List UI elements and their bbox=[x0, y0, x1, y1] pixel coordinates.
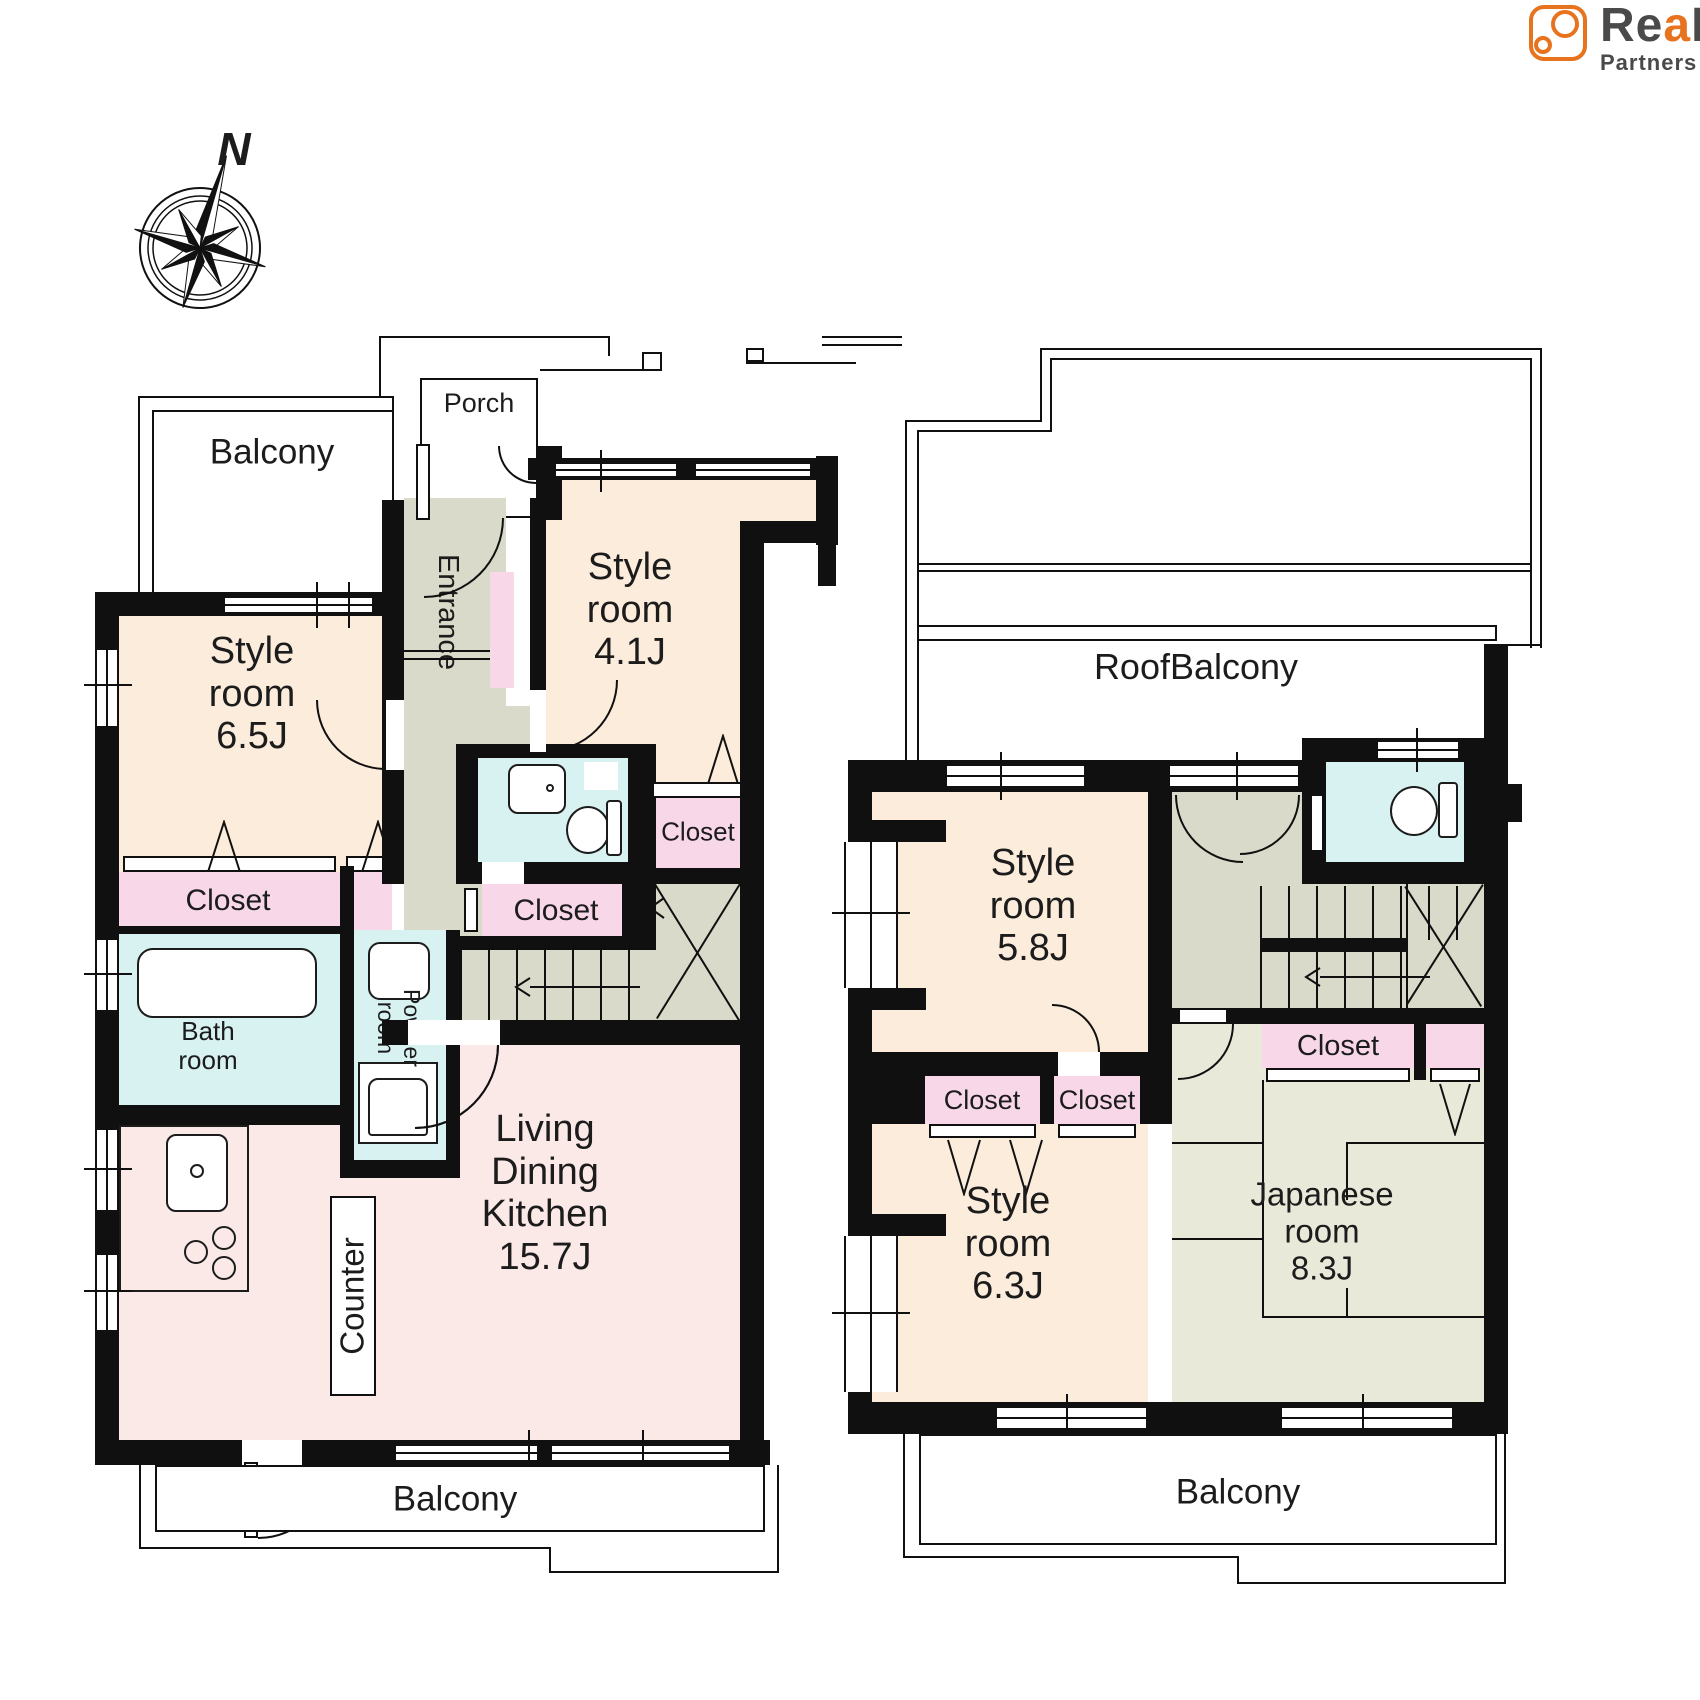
shoe-cabinet bbox=[490, 572, 514, 688]
wall bbox=[382, 500, 404, 884]
closet-b-label: Closet bbox=[1059, 1085, 1136, 1115]
closet-side bbox=[1426, 1024, 1484, 1068]
outline bbox=[822, 344, 902, 346]
brand-name: ReaL bbox=[1600, 2, 1700, 50]
wall bbox=[866, 1214, 946, 1236]
balcony-bottom-label: Balcony bbox=[393, 1479, 518, 1518]
toilet-sink-icon bbox=[508, 764, 566, 814]
window bbox=[556, 462, 676, 478]
outline bbox=[1237, 1582, 1506, 1584]
wall bbox=[1508, 784, 1522, 822]
stair-line bbox=[1406, 884, 1408, 1010]
balcony-top-label: Balcony bbox=[210, 432, 335, 471]
planter-box bbox=[917, 625, 1497, 641]
window-tick bbox=[832, 912, 910, 914]
window-bay bbox=[844, 1236, 898, 1392]
closet-41-label: Closet bbox=[661, 817, 735, 846]
window bbox=[552, 1444, 729, 1462]
stove-burner-icon bbox=[184, 1240, 208, 1264]
wall bbox=[1484, 646, 1508, 1434]
bathtub-icon bbox=[137, 948, 317, 1018]
faucet-dot bbox=[546, 784, 554, 792]
window-tick bbox=[316, 582, 318, 628]
outline bbox=[746, 362, 856, 364]
window-tick bbox=[84, 1290, 132, 1292]
window-tick bbox=[84, 973, 132, 975]
stairs-2f-lower bbox=[1260, 952, 1406, 1010]
wall bbox=[866, 820, 946, 842]
wall bbox=[1140, 1076, 1172, 1124]
window bbox=[1170, 764, 1298, 788]
brand-subtitle: Partners bbox=[1600, 50, 1700, 76]
roof-balcony-label: RoofBalcony bbox=[1094, 647, 1298, 687]
window-tick bbox=[600, 450, 602, 492]
wall bbox=[340, 1160, 460, 1178]
closet-a-label: Closet bbox=[944, 1085, 1021, 1115]
outline bbox=[777, 1465, 779, 1573]
outline bbox=[917, 430, 919, 760]
outline bbox=[540, 369, 644, 371]
porch-label: Porch bbox=[444, 388, 515, 418]
outline bbox=[746, 348, 764, 362]
toilet-shelf bbox=[584, 762, 618, 790]
closet-front bbox=[1430, 1068, 1480, 1082]
stair-arrow-head bbox=[514, 976, 532, 998]
compass-north-label: N bbox=[217, 124, 250, 176]
window-tick bbox=[832, 1312, 910, 1314]
outline bbox=[1050, 358, 1532, 360]
window-tick bbox=[1236, 752, 1238, 800]
door-gap bbox=[386, 700, 404, 770]
tatami-line bbox=[1262, 1316, 1484, 1318]
front-door-leaf bbox=[416, 444, 430, 520]
outline bbox=[1040, 348, 1542, 350]
window bbox=[1378, 740, 1458, 760]
outline bbox=[1040, 348, 1042, 422]
outline bbox=[903, 1434, 905, 1558]
window-bay bbox=[844, 842, 898, 988]
tatami-line bbox=[1346, 1288, 1348, 1318]
window bbox=[396, 1444, 537, 1462]
door-gap bbox=[408, 1020, 500, 1045]
outline bbox=[1530, 358, 1532, 648]
stove-burner-icon bbox=[212, 1226, 236, 1250]
door-threshold bbox=[1178, 1008, 1228, 1024]
railing-line bbox=[917, 563, 1530, 565]
wall bbox=[112, 926, 352, 934]
closet-hall-label: Closet bbox=[513, 894, 598, 928]
counter-label: Counter bbox=[335, 1237, 372, 1354]
wall bbox=[456, 936, 656, 950]
outline bbox=[549, 1547, 551, 1573]
style-room-6-5-label: Styleroom6.5J bbox=[209, 630, 296, 758]
closet-front bbox=[1058, 1124, 1136, 1138]
window-tick bbox=[1416, 728, 1418, 772]
outline bbox=[905, 420, 1042, 422]
ldk-label: LivingDiningKitchen15.7J bbox=[482, 1108, 609, 1278]
outline bbox=[139, 1547, 551, 1549]
balcony-2f-label: Balcony bbox=[1176, 1472, 1301, 1511]
style-room-4-1-label: Styleroom4.1J bbox=[587, 546, 674, 674]
closet-front bbox=[1266, 1068, 1410, 1082]
wall bbox=[872, 1076, 925, 1124]
brand-logo-text: ReaL Partners bbox=[1600, 2, 1700, 76]
window bbox=[95, 1255, 119, 1330]
stove-burner-icon bbox=[212, 1256, 236, 1280]
outline bbox=[379, 336, 610, 338]
wall bbox=[340, 866, 354, 932]
door-gap bbox=[482, 862, 524, 884]
outline bbox=[1050, 358, 1052, 432]
wall bbox=[1414, 1024, 1426, 1080]
closet-c-label: Closet bbox=[1297, 1030, 1379, 1062]
door-gap bbox=[530, 690, 546, 752]
window bbox=[997, 1406, 1146, 1430]
window bbox=[95, 650, 119, 726]
wall bbox=[1040, 1076, 1054, 1124]
stairs bbox=[460, 950, 656, 1020]
outline bbox=[608, 336, 610, 356]
stair-arrow-head bbox=[1304, 966, 1322, 988]
wall bbox=[95, 1105, 352, 1125]
wall bbox=[818, 508, 836, 586]
japanese-room-label: Japaneseroom8.3J bbox=[1250, 1177, 1393, 1288]
window-tick bbox=[84, 684, 132, 686]
style-room-4-1-bay bbox=[700, 480, 816, 521]
genkan-step bbox=[404, 658, 490, 660]
outline bbox=[642, 352, 662, 371]
outline bbox=[917, 430, 1052, 432]
wall bbox=[740, 521, 764, 1465]
wall bbox=[1260, 938, 1406, 952]
toilet-tank-icon bbox=[1438, 782, 1458, 838]
toilet-door-leaf bbox=[1310, 794, 1324, 852]
toilet-bowl-icon bbox=[566, 806, 610, 854]
tatami-line bbox=[1346, 1142, 1484, 1144]
door-gap bbox=[1058, 1052, 1100, 1076]
outline bbox=[139, 1465, 141, 1549]
railing-line bbox=[917, 570, 1530, 572]
toilet-bowl-icon bbox=[1390, 786, 1438, 836]
window-tick bbox=[1000, 752, 1002, 800]
closet-front bbox=[652, 782, 744, 798]
outline bbox=[903, 1556, 1239, 1558]
window bbox=[947, 764, 1084, 788]
outline bbox=[905, 420, 907, 760]
window bbox=[95, 1130, 119, 1210]
floorplan-canvas: N ReaL Partners Balcony Porch Closet bbox=[0, 0, 1700, 1700]
wall bbox=[340, 930, 354, 1178]
closet-door-mark bbox=[206, 820, 242, 872]
closet-door-mark bbox=[706, 734, 740, 784]
outline bbox=[549, 1571, 779, 1573]
wall bbox=[866, 988, 926, 1010]
closet-main-label: Closet bbox=[185, 884, 270, 918]
wall bbox=[1302, 862, 1488, 884]
window bbox=[696, 462, 810, 478]
window bbox=[1282, 1406, 1452, 1430]
stair-arrow bbox=[530, 986, 640, 988]
closet-door-mark bbox=[1438, 1082, 1472, 1136]
stair-arrow bbox=[1320, 976, 1430, 978]
wall bbox=[848, 1052, 1172, 1076]
outline bbox=[379, 336, 381, 400]
closet-front bbox=[929, 1124, 1036, 1138]
window-tick bbox=[84, 1168, 132, 1170]
wall bbox=[1148, 792, 1172, 1062]
brand-logo-icon bbox=[1528, 4, 1588, 62]
closet-door-leaf bbox=[464, 888, 478, 932]
style-room-6-3-label: Styleroom6.3J bbox=[965, 1180, 1052, 1308]
faucet-dot bbox=[190, 1164, 204, 1178]
genkan-step bbox=[404, 650, 490, 652]
window-tick bbox=[348, 582, 350, 628]
outline bbox=[822, 336, 902, 338]
outline bbox=[1540, 348, 1542, 648]
tatami-line bbox=[1172, 1142, 1264, 1144]
style-room-5-8-label: Styleroom5.8J bbox=[990, 842, 1077, 970]
outline bbox=[1237, 1556, 1239, 1584]
outline bbox=[1504, 1434, 1506, 1584]
window bbox=[95, 940, 119, 1010]
toilet-tank-icon bbox=[606, 800, 622, 856]
compass-rose-icon bbox=[100, 148, 300, 348]
bath-room-label: Bathroom bbox=[178, 1017, 237, 1075]
